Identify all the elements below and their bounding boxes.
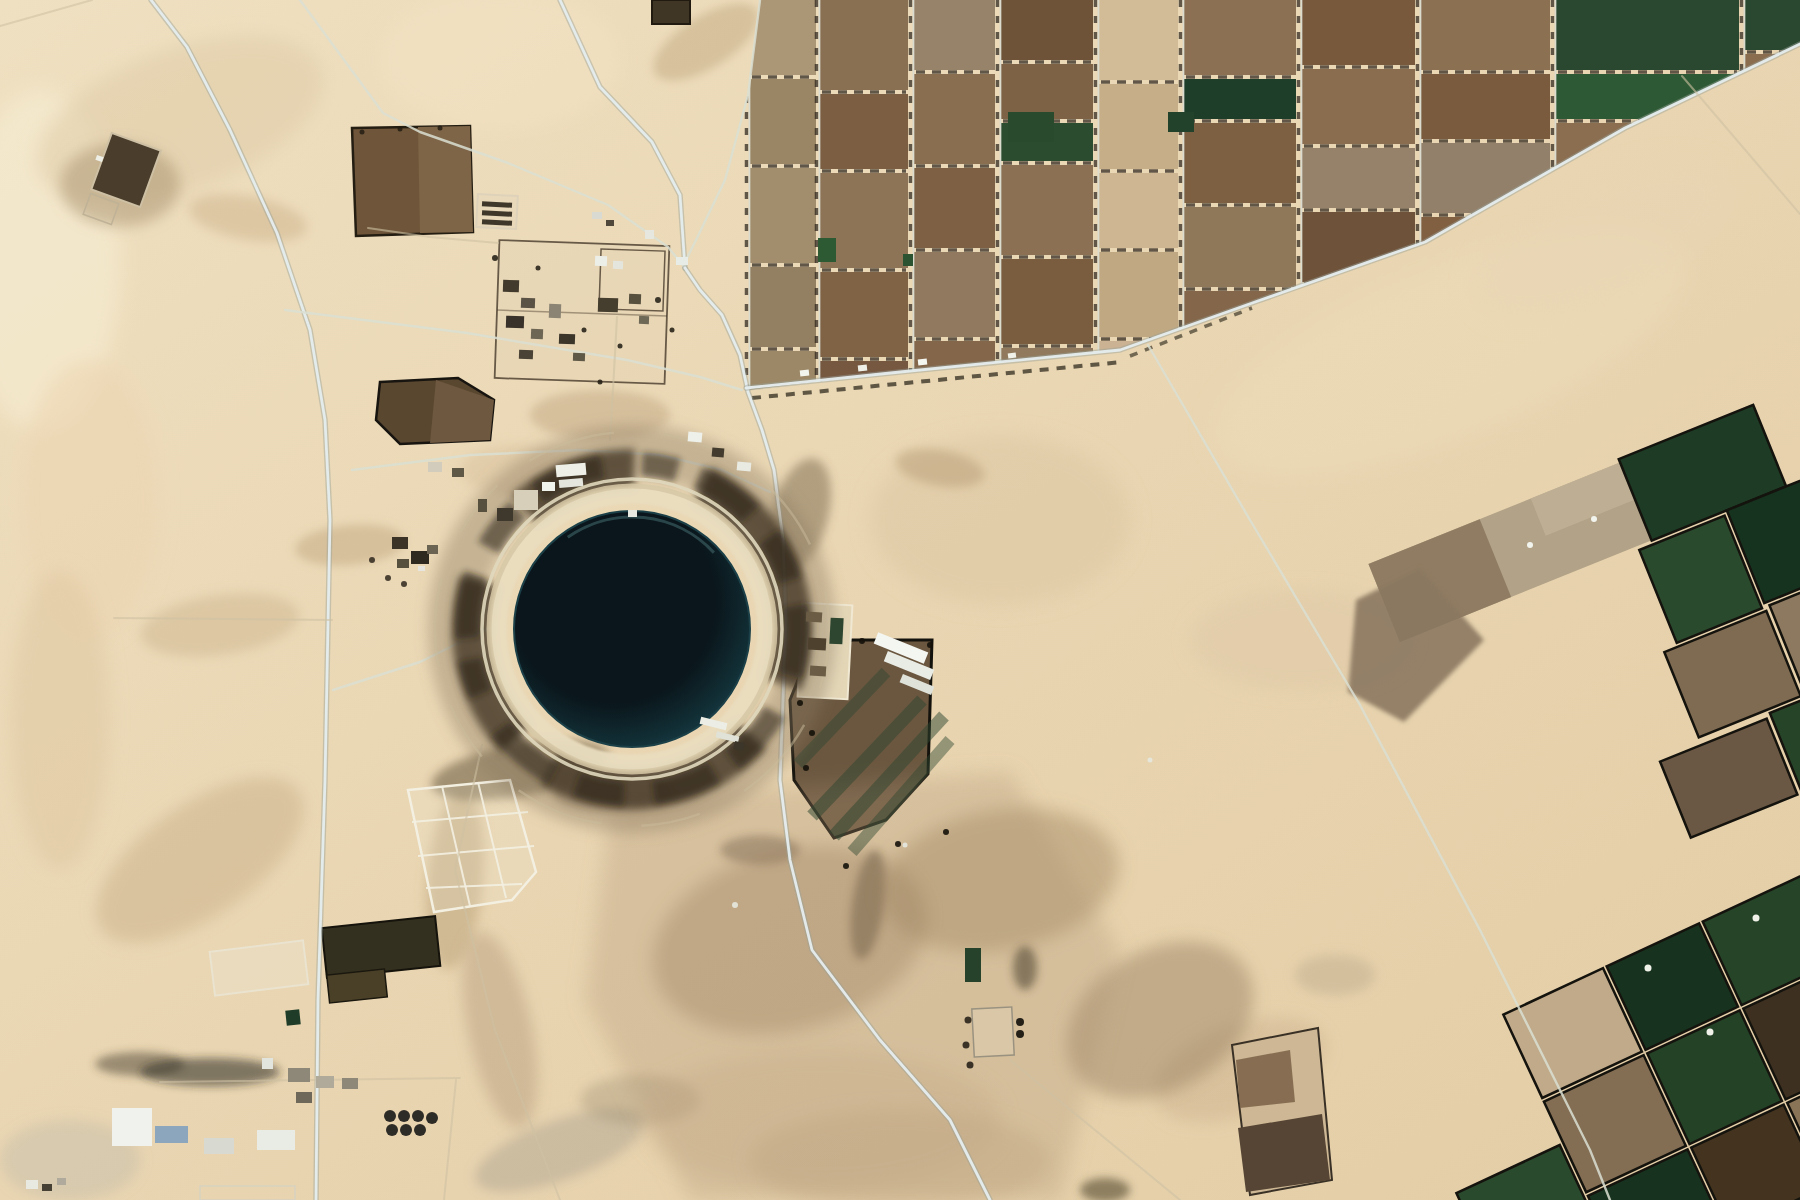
small-feature-dot <box>401 581 407 587</box>
field-cell <box>820 0 908 90</box>
building <box>257 1130 295 1150</box>
building <box>262 1058 273 1069</box>
small-feature-dot <box>385 575 391 581</box>
small-feature-dot <box>582 328 587 333</box>
satellite-image[interactable] <box>0 0 1800 1200</box>
building <box>592 212 602 219</box>
building <box>531 329 543 339</box>
building <box>628 510 637 517</box>
field-cell <box>1099 252 1178 337</box>
building <box>427 545 438 554</box>
small-feature-dot <box>1591 516 1597 522</box>
small-feature-dot <box>412 1110 424 1122</box>
green-field-cell <box>1008 112 1054 142</box>
building <box>613 261 623 269</box>
building <box>514 490 538 510</box>
field-cell <box>1421 0 1550 70</box>
field-cell <box>1184 123 1296 203</box>
small-feature-dot <box>1753 915 1760 922</box>
building <box>497 508 513 521</box>
small-feature-dot <box>1645 965 1652 972</box>
building <box>712 447 725 457</box>
building <box>549 304 561 318</box>
building <box>858 365 868 372</box>
building <box>688 431 703 442</box>
building <box>542 482 555 491</box>
building <box>521 298 535 308</box>
field-cell <box>820 94 908 169</box>
building <box>829 618 843 645</box>
small-feature-dot <box>963 1042 970 1049</box>
small-feature-dot <box>598 380 603 385</box>
south-mottled-plain <box>585 772 1120 1200</box>
building <box>397 559 409 568</box>
small-feature-dot <box>400 1124 412 1136</box>
building <box>478 499 487 512</box>
building <box>285 1009 300 1025</box>
field-cell <box>914 252 995 337</box>
building <box>800 370 810 377</box>
building <box>26 1180 38 1189</box>
small-feature-dot <box>386 1124 398 1136</box>
building <box>629 294 641 304</box>
building <box>519 350 533 359</box>
building <box>155 1126 188 1143</box>
field-cell <box>1184 207 1296 287</box>
small-feature-dot <box>1016 1030 1024 1038</box>
building <box>598 298 618 313</box>
building <box>806 612 823 623</box>
small-feature-dot <box>943 829 949 835</box>
building <box>452 468 464 477</box>
building <box>595 256 607 266</box>
field-cell <box>1099 0 1178 80</box>
small-feature-dot <box>965 1017 972 1024</box>
field-cell <box>1001 259 1093 344</box>
building <box>503 280 519 293</box>
building <box>606 220 614 226</box>
field-cell <box>1001 0 1093 60</box>
field-cell <box>914 168 995 248</box>
building <box>965 948 981 982</box>
small-feature-dot <box>426 1112 438 1124</box>
small-feature-dot <box>655 297 661 303</box>
field-cell <box>1302 69 1415 144</box>
small-feature-dot <box>384 1110 396 1122</box>
terrain-patch <box>1295 955 1375 995</box>
field-cell <box>750 79 816 164</box>
small-feature-dot <box>618 344 623 349</box>
small-feature-dot <box>927 642 933 648</box>
field-cell <box>1099 173 1178 248</box>
field-cell <box>1302 148 1415 208</box>
small-feature-dot <box>1016 1018 1024 1026</box>
building <box>559 334 575 345</box>
small-feature-dot <box>732 902 738 908</box>
building <box>737 461 752 471</box>
terrain-patch <box>10 570 110 870</box>
small-feature-dot <box>492 255 498 261</box>
building <box>428 462 442 472</box>
building <box>639 316 649 324</box>
field-cell <box>1184 0 1296 75</box>
field-cell <box>1001 64 1093 119</box>
building <box>296 1092 312 1103</box>
building <box>676 257 688 265</box>
small-feature-dot <box>809 730 815 736</box>
building <box>418 566 425 571</box>
building <box>411 551 429 564</box>
field-cell <box>914 74 995 164</box>
green-field-cell <box>818 238 836 262</box>
building <box>288 1068 310 1082</box>
building <box>573 353 585 361</box>
dark-compound-top-edge <box>652 0 690 24</box>
small-feature-dot <box>859 638 865 644</box>
field-cell <box>1184 79 1296 119</box>
building <box>392 537 408 549</box>
green-field-cell <box>903 254 913 266</box>
building <box>808 638 827 651</box>
small-feature-dot <box>1148 758 1153 763</box>
field-cell <box>1421 74 1550 139</box>
building <box>342 1078 358 1089</box>
building <box>810 666 827 677</box>
field-cell <box>750 267 816 347</box>
small-feature-dot <box>536 266 541 271</box>
small-feature-dot <box>398 1110 410 1122</box>
village-wall-west <box>495 240 670 384</box>
small-feature-dot <box>803 765 809 771</box>
field-cell <box>750 0 816 75</box>
building <box>57 1178 66 1185</box>
small-feature-dot <box>903 843 908 848</box>
building <box>918 359 928 366</box>
dark-plantation-southwest <box>322 916 441 978</box>
dark-plantation-southwest-2 <box>327 969 388 1003</box>
field-cell <box>914 0 995 70</box>
field-cell <box>750 168 816 263</box>
green-field-cell <box>1168 112 1194 132</box>
building <box>112 1108 152 1146</box>
small-feature-dot <box>1707 1029 1714 1036</box>
satellite-map-canvas[interactable] <box>0 0 1800 1200</box>
farm-compound-south <box>972 1007 1014 1057</box>
small-feature-dot <box>398 127 403 132</box>
field-cell <box>1556 0 1739 70</box>
bordered-parcel-south-brown <box>1236 1050 1295 1108</box>
building <box>645 230 654 239</box>
building <box>204 1138 234 1154</box>
field-cell <box>1302 0 1415 65</box>
small-feature-dot <box>797 700 803 706</box>
building <box>42 1184 52 1191</box>
field-cell <box>820 272 908 357</box>
building <box>316 1076 334 1088</box>
small-feature-dot <box>895 841 901 847</box>
reservoir-water <box>514 511 750 747</box>
small-feature-dot <box>843 863 849 869</box>
field-cell <box>1001 165 1093 255</box>
small-feature-dot <box>369 557 375 563</box>
small-feature-dot <box>360 130 365 135</box>
small-feature-dot <box>967 1062 974 1069</box>
building <box>506 316 524 329</box>
small-feature-dot <box>414 1124 426 1136</box>
field-cell <box>1745 0 1800 50</box>
small-feature-dot <box>1527 542 1533 548</box>
small-feature-dot <box>670 328 675 333</box>
field-cell <box>1099 84 1178 169</box>
small-feature-dot <box>438 126 443 131</box>
